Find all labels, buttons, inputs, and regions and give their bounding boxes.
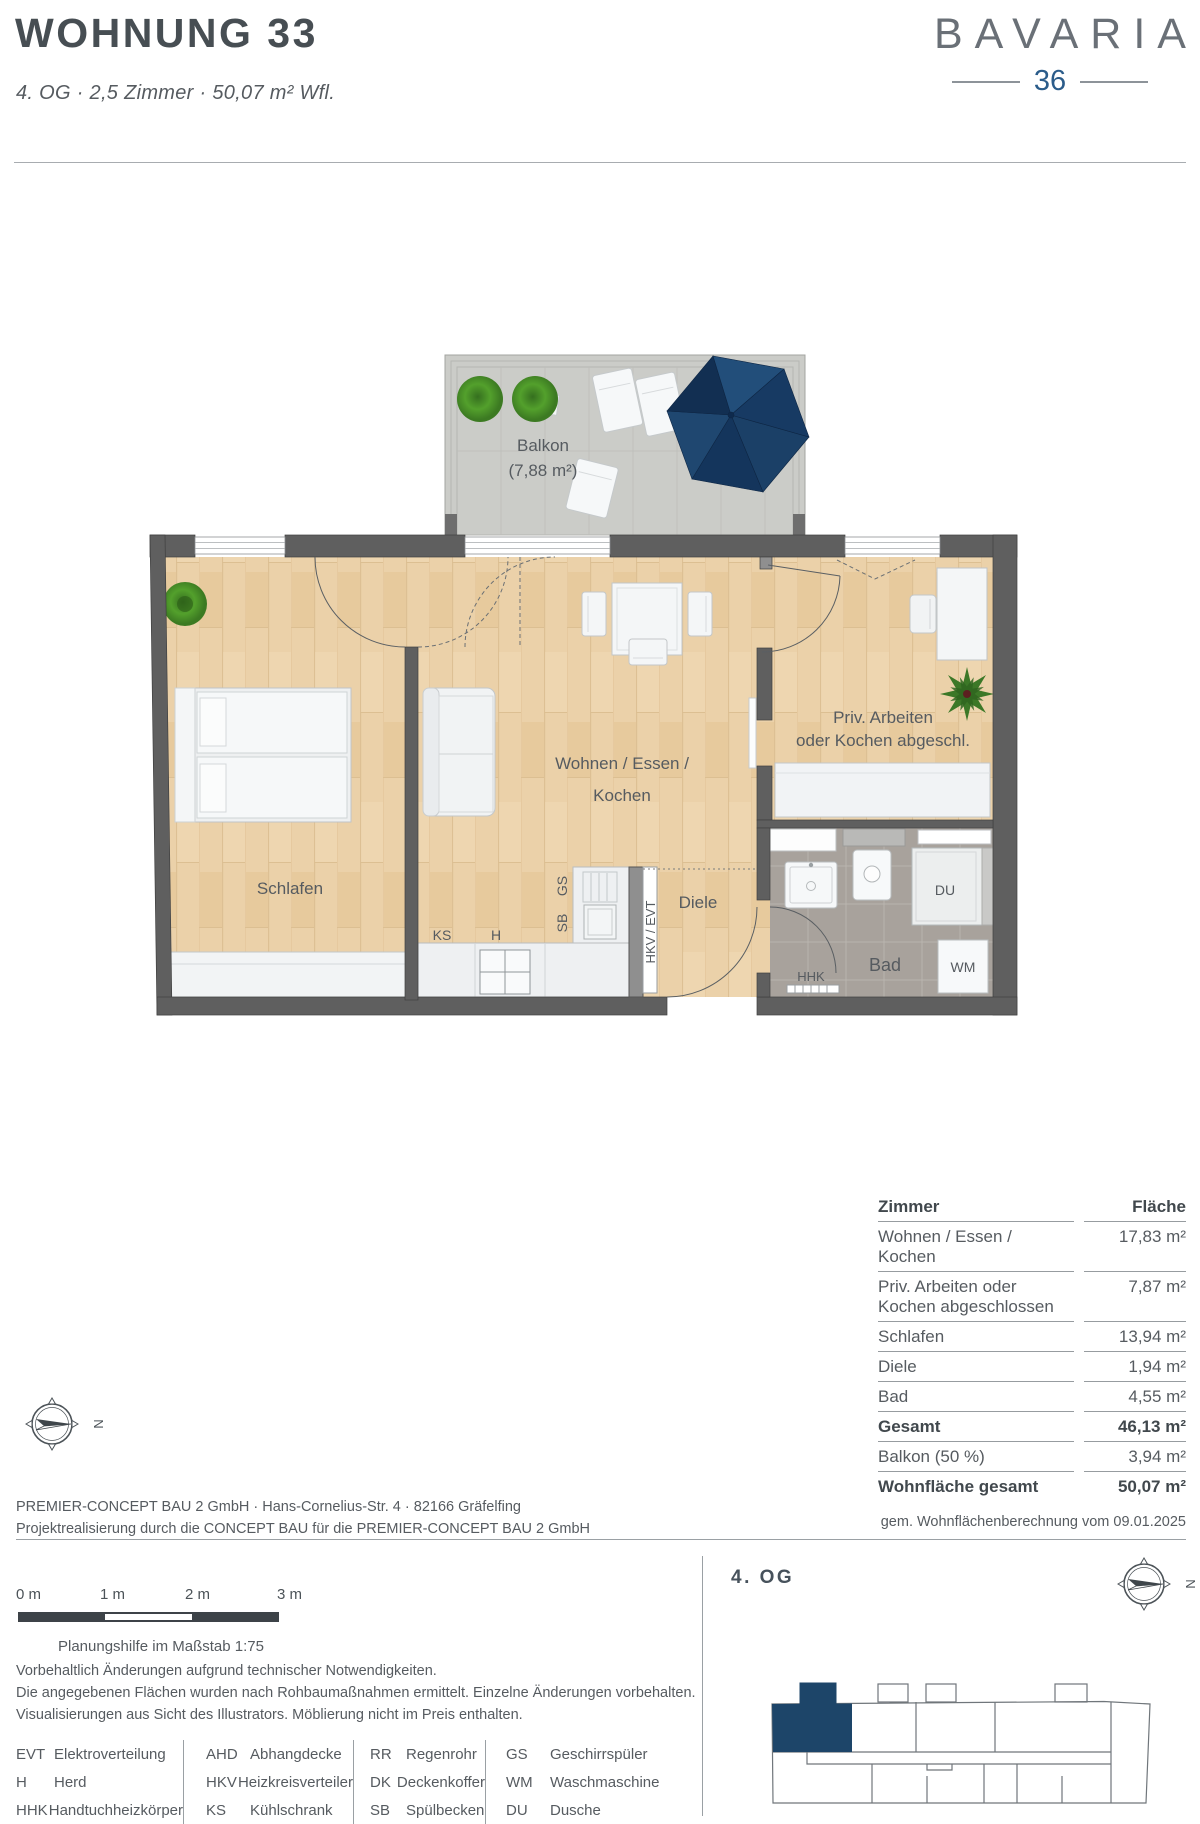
living-room-label: Wohnen / Essen / xyxy=(555,754,689,773)
dishwasher-label: GS xyxy=(554,876,570,896)
scale-label-2: 2 m xyxy=(185,1586,210,1603)
row-label: Balkon (50 %) xyxy=(878,1442,1074,1472)
disclaimer-line3: Visualisierungen aus Sicht des Illustrat… xyxy=(16,1704,696,1726)
legend-term: Geschirrspüler xyxy=(550,1746,648,1763)
brand-logo: BAVARIA 36 xyxy=(914,10,1186,98)
balcony-wall-stub xyxy=(445,514,457,535)
scale-caption: Planungshilfe im Maßstab 1:75 xyxy=(58,1638,264,1655)
row-label: Priv. Arbeiten oder Kochen abgeschlossen xyxy=(878,1272,1074,1322)
legend-abbr: AHD xyxy=(206,1746,250,1763)
brand-number: 36 xyxy=(1034,65,1066,98)
legend-abbr: HKV xyxy=(206,1774,238,1791)
legend-abbr: SB xyxy=(370,1802,406,1819)
sink-label: SB xyxy=(554,914,570,933)
row-value: 3,94 m² xyxy=(1084,1442,1186,1472)
legend-term: Kühlschrank xyxy=(250,1802,333,1819)
row-label: Wohnfläche gesamt xyxy=(878,1472,1074,1501)
legend-term: Elektroverteilung xyxy=(54,1746,166,1763)
disclaimer-line2: Die angegebenen Flächen wurden nach Rohb… xyxy=(16,1682,696,1704)
balcony-label: Balkon xyxy=(517,436,569,455)
row-label: Schlafen xyxy=(878,1322,1074,1352)
hob xyxy=(480,950,530,994)
legend-column: AHDAbhangdecke HKVHeizkreisverteiler KSK… xyxy=(183,1740,353,1824)
legend-term: Herd xyxy=(54,1774,87,1791)
balcony-plant xyxy=(512,376,558,422)
company-info: PREMIER-CONCEPT BAU 2 GmbH · Hans-Cornel… xyxy=(16,1496,590,1540)
balcony-wall-stub xyxy=(793,514,805,535)
row-value: 4,55 m² xyxy=(1084,1382,1186,1412)
legend-column: EVTElektroverteilung HHerd HHKHandtuchhe… xyxy=(16,1740,183,1824)
balcony-plant xyxy=(457,376,503,422)
scale-bar: 0 m 1 m 2 m 3 m Planungshilfe im Maßstab… xyxy=(16,1586,316,1666)
table-row: Schlafen 13,94 m² xyxy=(878,1322,1186,1352)
scale-label-0: 0 m xyxy=(16,1586,41,1603)
area-table: Zimmer Fläche Wohnen / Essen / Kochen 17… xyxy=(878,1192,1186,1501)
double-bed xyxy=(175,688,351,822)
legend-column: RRRegenrohr DKDeckenkoffer SBSpülbecken xyxy=(353,1740,485,1824)
footer-vertical-divider xyxy=(702,1556,703,1816)
fridge-label: KS xyxy=(433,927,452,943)
table-row: Diele 1,94 m² xyxy=(878,1352,1186,1382)
living-room-label2: Kochen xyxy=(593,786,651,805)
wardrobe xyxy=(168,952,408,997)
calculation-note: gem. Wohnflächenberechnung vom 09.01.202… xyxy=(881,1514,1186,1530)
private-room-window xyxy=(845,537,940,554)
compass-icon: N xyxy=(1108,1552,1200,1616)
legend-term: Abhangdecke xyxy=(250,1746,342,1763)
footer-divider xyxy=(16,1539,1186,1540)
towel-radiator xyxy=(787,985,839,993)
north-letter: N xyxy=(1183,1579,1198,1588)
legend-abbr: GS xyxy=(506,1746,550,1763)
company-line2: Projektrealisierung durch die CONCEPT BA… xyxy=(16,1518,590,1540)
table-header: Zimmer Fläche xyxy=(878,1192,1186,1222)
bath-shelf xyxy=(843,829,905,846)
scale-label-1: 1 m xyxy=(100,1586,125,1603)
bath-label: Bad xyxy=(869,955,901,975)
legend-term: Heizkreisverteiler xyxy=(238,1774,353,1791)
legend-abbr: H xyxy=(16,1774,54,1791)
indoor-plant xyxy=(940,667,994,721)
legend-abbr: DU xyxy=(506,1802,550,1819)
north-letter: N xyxy=(91,1419,106,1428)
legend-abbr: WM xyxy=(506,1774,550,1791)
key-plan-highlighted-unit xyxy=(772,1683,852,1752)
private-room-label2: oder Kochen abgeschl. xyxy=(796,731,970,750)
key-plan xyxy=(752,1664,1172,1819)
scale-bar-graphic xyxy=(18,1612,279,1622)
row-label: Diele xyxy=(878,1352,1074,1382)
legend-term: Regenrohr xyxy=(406,1746,477,1763)
towel-radiator-label: HHK xyxy=(797,969,825,984)
table-row-total: Gesamt 46,13 m² xyxy=(878,1412,1186,1442)
toilet xyxy=(853,850,891,900)
row-value: 7,87 m² xyxy=(1084,1272,1186,1322)
legend-term: Dusche xyxy=(550,1802,601,1819)
table-row: Balkon (50 %) 3,94 m² xyxy=(878,1442,1186,1472)
row-label: Wohnen / Essen / Kochen xyxy=(878,1222,1074,1272)
sofa xyxy=(423,688,495,816)
bedroom-plant xyxy=(163,582,207,626)
row-value: 13,94 m² xyxy=(1084,1322,1186,1352)
compass-icon: N xyxy=(16,1392,111,1456)
legend-abbr: RR xyxy=(370,1746,406,1763)
washing-machine-label: WM xyxy=(951,959,976,975)
brand-name: BAVARIA xyxy=(914,10,1198,59)
col-area: Fläche xyxy=(1084,1192,1186,1222)
sliding-door-leaf xyxy=(749,698,756,768)
abbreviation-legend: EVTElektroverteilung HHerd HHKHandtuchhe… xyxy=(16,1740,685,1824)
balcony-door-window xyxy=(465,537,610,554)
floor-plan: Balkon (7,88 m²) xyxy=(130,352,1040,1022)
balcony-area: (7,88 m²) xyxy=(509,461,578,480)
bath-niche xyxy=(918,830,991,844)
company-line1: PREMIER-CONCEPT BAU 2 GmbH · Hans-Cornel… xyxy=(16,1496,590,1518)
row-value: 46,13 m² xyxy=(1084,1412,1186,1442)
col-room: Zimmer xyxy=(878,1192,1074,1222)
bedroom-label: Schlafen xyxy=(257,879,323,898)
table-row: Bad 4,55 m² xyxy=(878,1382,1186,1412)
row-value: 17,83 m² xyxy=(1084,1222,1186,1272)
floor-level-label: 4. OG xyxy=(731,1567,794,1589)
legend-term: Handtuchheizkörper xyxy=(49,1802,183,1819)
legend-term: Spülbecken xyxy=(406,1802,484,1819)
bedroom-window xyxy=(195,537,285,554)
disclaimer-line1: Vorbehaltlich Änderungen aufgrund techni… xyxy=(16,1660,696,1682)
scale-label-3: 3 m xyxy=(277,1586,302,1603)
legend-abbr: HHK xyxy=(16,1802,49,1819)
page-title: WOHNUNG 33 xyxy=(15,10,318,57)
shower-label: DU xyxy=(935,882,955,898)
hall-label: Diele xyxy=(679,893,718,912)
table-row-grand-total: Wohnfläche gesamt 50,07 m² xyxy=(878,1472,1186,1501)
row-value: 50,07 m² xyxy=(1084,1472,1186,1501)
logo-rule-right xyxy=(1080,81,1148,83)
legend-column: GSGeschirrspüler WMWaschmaschine DUDusch… xyxy=(485,1740,685,1824)
hkv-evt-label: HKV / EVT xyxy=(643,901,658,964)
legend-abbr: EVT xyxy=(16,1746,54,1763)
private-room-label: Priv. Arbeiten xyxy=(833,708,933,727)
row-label: Gesamt xyxy=(878,1412,1074,1442)
legend-abbr: DK xyxy=(370,1774,397,1791)
table-row: Wohnen / Essen / Kochen 17,83 m² xyxy=(878,1222,1186,1272)
legend-abbr: KS xyxy=(206,1802,250,1819)
legend-term: Waschmaschine xyxy=(550,1774,659,1791)
header-divider xyxy=(14,162,1186,163)
row-value: 1,94 m² xyxy=(1084,1352,1186,1382)
stove-label: H xyxy=(491,927,501,943)
balcony: Balkon (7,88 m²) xyxy=(445,355,809,535)
logo-rule-left xyxy=(952,81,1020,83)
sideboard xyxy=(775,763,990,817)
disclaimer: Vorbehaltlich Änderungen aufgrund techni… xyxy=(16,1660,696,1726)
bath-door-leaf xyxy=(770,829,836,851)
table-row: Priv. Arbeiten oder Kochen abgeschlossen… xyxy=(878,1272,1186,1322)
row-label: Bad xyxy=(878,1382,1074,1412)
legend-term: Deckenkoffer xyxy=(397,1774,485,1791)
apartment-subtitle: 4. OG · 2,5 Zimmer · 50,07 m² Wfl. xyxy=(16,82,335,105)
floorplan-sheet: WOHNUNG 33 4. OG · 2,5 Zimmer · 50,07 m²… xyxy=(0,0,1200,1824)
washbasin xyxy=(785,862,837,908)
